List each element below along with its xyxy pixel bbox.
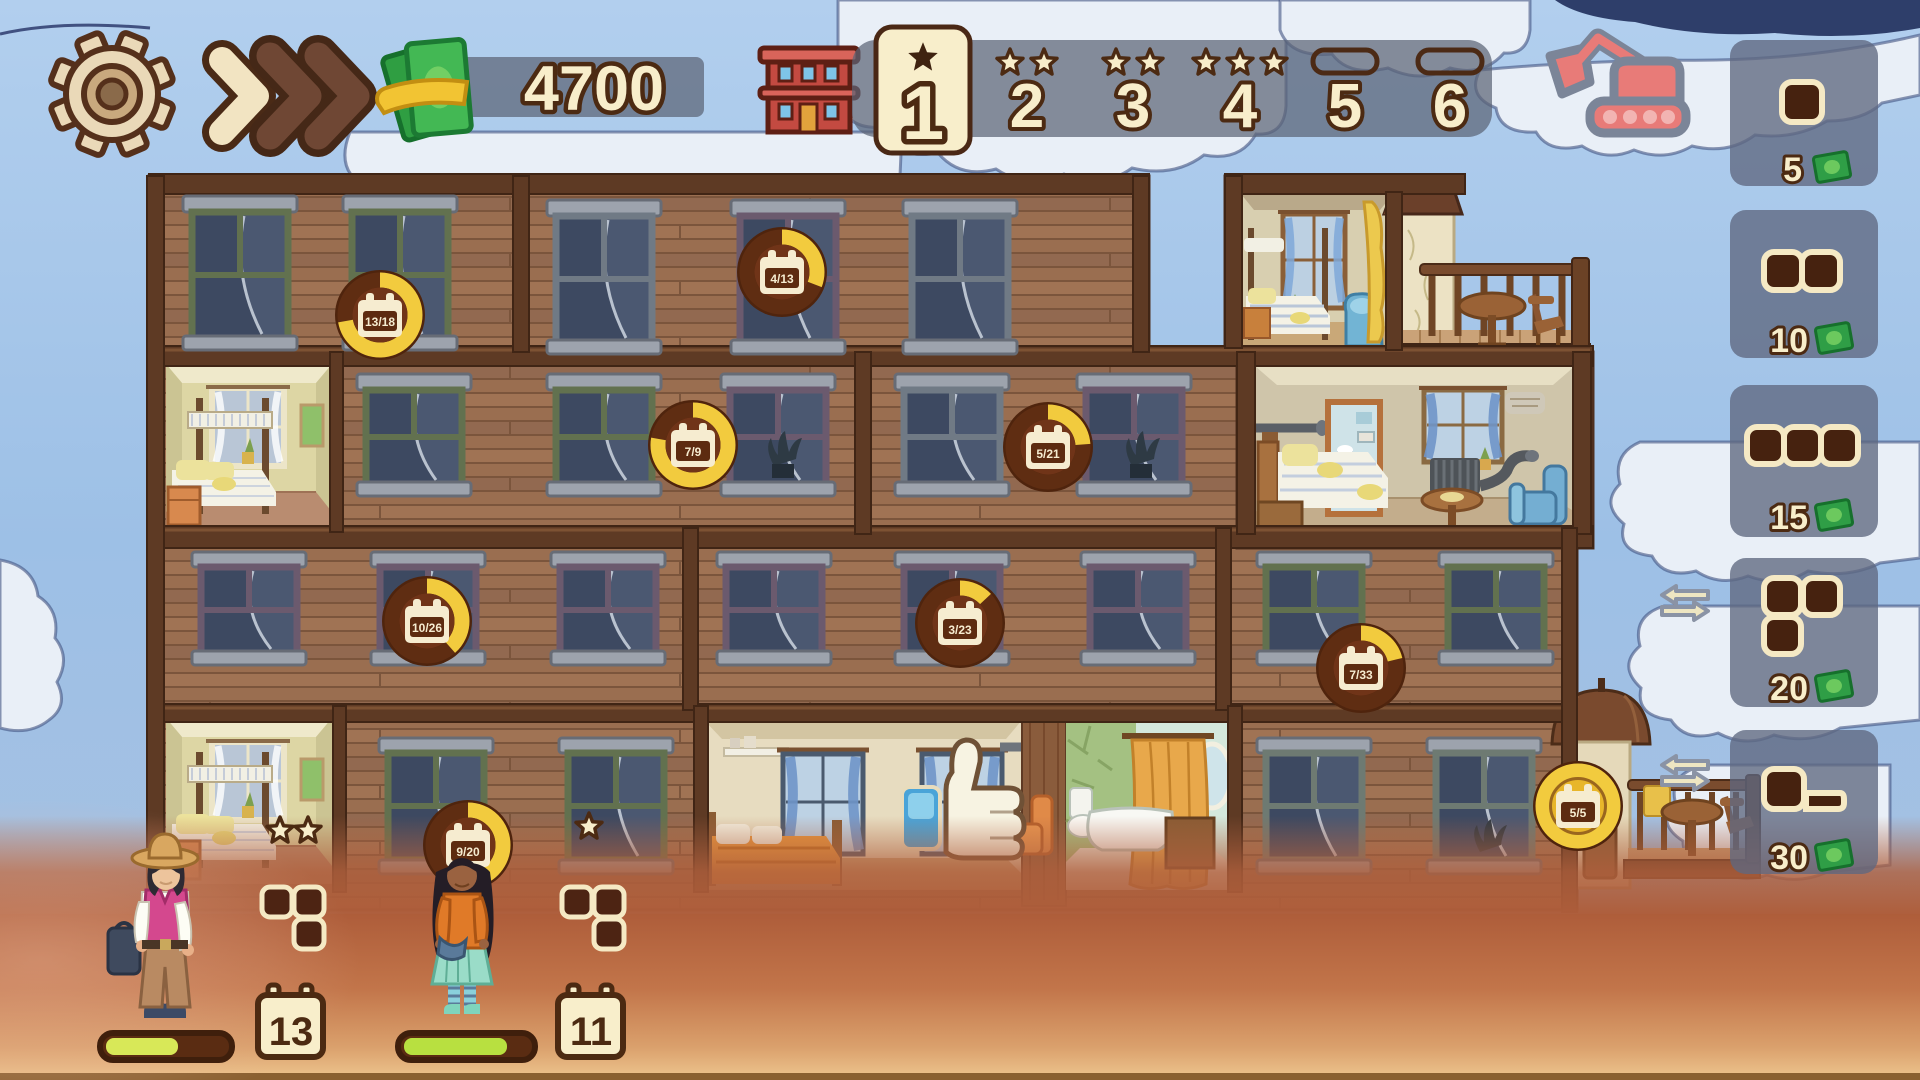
svg-text:5/21: 5/21 [1036, 447, 1060, 461]
svg-text:7/33: 7/33 [1349, 668, 1373, 682]
svg-text:1: 1 [902, 71, 944, 156]
svg-text:20: 20 [1770, 670, 1808, 708]
svg-text:5: 5 [1783, 151, 1802, 189]
svg-text:5: 5 [1328, 72, 1362, 141]
svg-text:5/5: 5/5 [1570, 806, 1587, 820]
svg-text:2: 2 [1010, 72, 1044, 141]
svg-text:7/9: 7/9 [685, 445, 702, 459]
svg-text:13/18: 13/18 [365, 315, 395, 329]
svg-text:3: 3 [1116, 72, 1150, 141]
svg-text:11: 11 [570, 1010, 612, 1054]
svg-text:30: 30 [1770, 839, 1808, 877]
svg-text:15: 15 [1770, 499, 1808, 537]
svg-text:13: 13 [269, 1010, 314, 1054]
svg-text:4700: 4700 [524, 54, 664, 124]
svg-text:6: 6 [1433, 72, 1467, 141]
svg-text:4: 4 [1223, 72, 1258, 141]
svg-text:10/26: 10/26 [412, 621, 442, 635]
svg-text:4/13: 4/13 [770, 272, 794, 286]
svg-text:9/20: 9/20 [456, 845, 480, 859]
svg-text:3/23: 3/23 [948, 623, 972, 637]
svg-text:10: 10 [1770, 322, 1808, 360]
